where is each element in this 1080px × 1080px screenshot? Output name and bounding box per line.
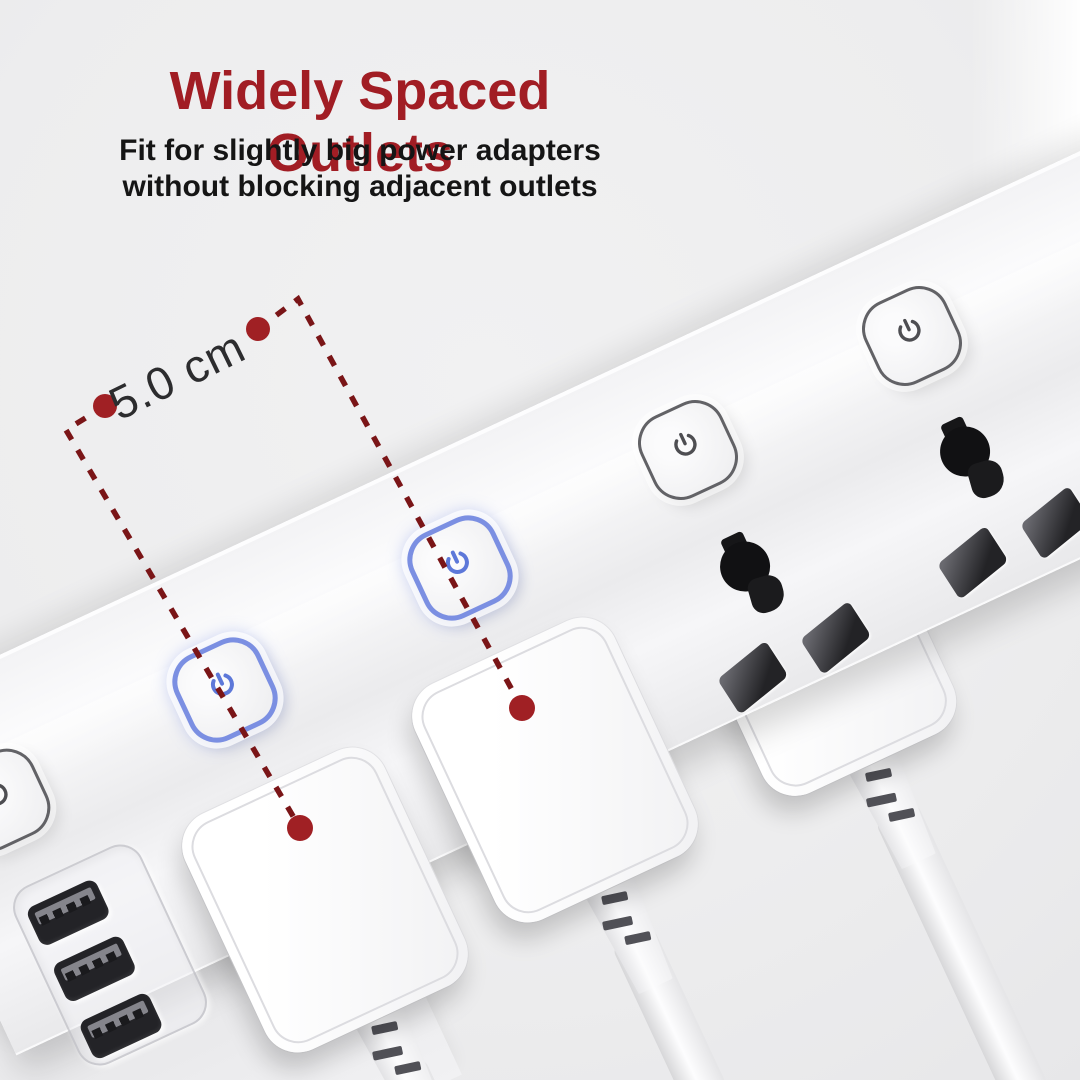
vent-slot	[865, 768, 892, 782]
usb-port-2	[51, 934, 138, 1004]
subtitle-line-1: Fit for slightly big power adapters	[70, 133, 650, 169]
subtitle-line-2: without blocking adjacent outlets	[70, 169, 650, 205]
product-scene: 5.0 cm Widely Spaced Outlets Fit for sli…	[0, 0, 1080, 1080]
earth-pin-hole	[928, 410, 1009, 507]
power-icon	[0, 771, 28, 829]
earth-pin-hole	[708, 525, 789, 622]
distance-label: 5.0 cm	[89, 313, 265, 436]
power-icon	[883, 307, 941, 365]
usb-port-1	[25, 878, 112, 948]
neutral-pin-slot	[800, 601, 871, 675]
live-pin-slot	[937, 525, 1008, 599]
subtitle: Fit for slightly big power adapters with…	[70, 133, 650, 205]
power-icon	[196, 661, 254, 719]
vent-slot	[888, 808, 915, 822]
power-icon	[659, 421, 717, 479]
power-icon	[431, 539, 489, 597]
live-pin-slot	[717, 640, 788, 714]
neutral-pin-slot	[1020, 486, 1080, 560]
vent-slot	[866, 793, 897, 808]
